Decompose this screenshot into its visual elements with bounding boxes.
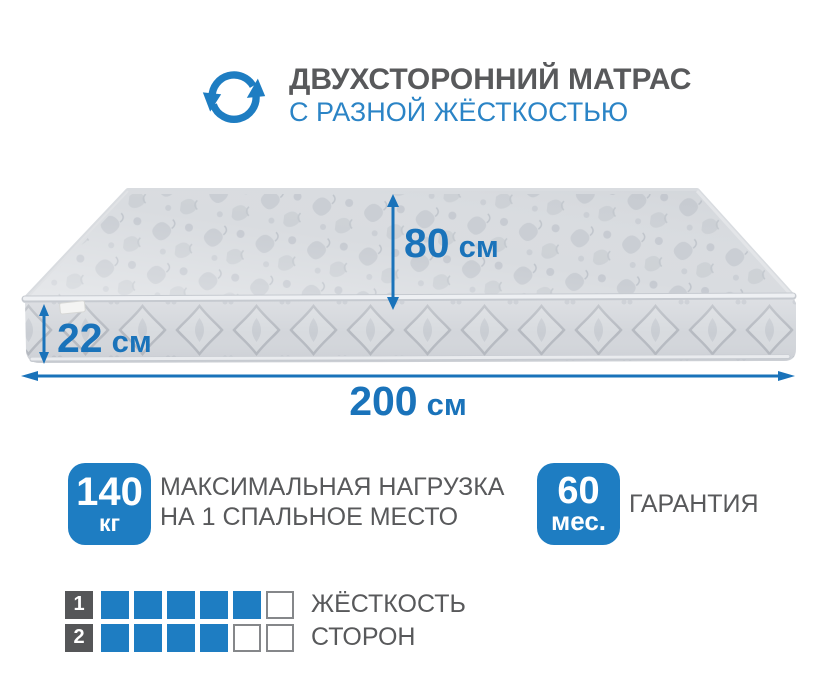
firmness-label: ЖЁСТКОСТЬ	[311, 590, 466, 619]
firmness-cell-filled	[101, 624, 129, 652]
firmness-cell-filled	[200, 624, 228, 652]
mattress-tag	[59, 301, 85, 315]
warranty-label: ГАРАНТИЯ	[629, 463, 759, 545]
dimension-thickness-unit: см	[112, 324, 152, 359]
page-title: ДВУХСТОРОННИЙ МАТРАС	[289, 62, 691, 97]
firmness-label: СТОРОН	[311, 623, 415, 652]
max-load-badge: 140 кг	[68, 463, 151, 545]
warranty-label-line1: ГАРАНТИЯ	[629, 489, 759, 519]
warranty-badge: 60 мес.	[537, 463, 620, 545]
dimension-length-value: 200	[349, 378, 417, 424]
max-load-label-line1: МАКСИМАЛЬНАЯ НАГРУЗКА	[160, 472, 504, 502]
dimension-thickness-value: 22	[57, 315, 103, 361]
page-subtitle: С РАЗНОЙ ЖЁСТКОСТЬЮ	[289, 97, 691, 127]
rotate-arrows-icon	[201, 64, 267, 130]
firmness-cell-empty	[266, 624, 294, 652]
max-load-value: 140	[76, 473, 143, 511]
max-load-unit: кг	[99, 511, 120, 535]
dimension-length-label: 200см	[0, 378, 816, 425]
header-titles: ДВУХСТОРОННИЙ МАТРАС С РАЗНОЙ ЖЁСТКОСТЬЮ	[289, 62, 691, 127]
dimension-thickness-label: 22см	[57, 315, 152, 362]
max-load-label-line2: НА 1 СПАЛЬНОЕ МЕСТО	[160, 502, 504, 532]
firmness-cell-filled	[200, 591, 228, 619]
header: ДВУХСТОРОННИЙ МАТРАС С РАЗНОЙ ЖЁСТКОСТЬЮ	[201, 62, 691, 130]
firmness-cells	[101, 624, 299, 652]
dimension-height-unit: см	[459, 229, 499, 264]
mattress-infographic: ДВУХСТОРОННИЙ МАТРАС С РАЗНОЙ ЖЁСТКОСТЬЮ	[0, 0, 816, 700]
warranty-unit: мес.	[551, 508, 606, 535]
firmness-cell-filled	[167, 624, 195, 652]
firmness-cells	[101, 591, 299, 619]
max-load-label: МАКСИМАЛЬНАЯ НАГРУЗКА НА 1 СПАЛЬНОЕ МЕСТ…	[160, 472, 504, 532]
firmness-cell-empty	[266, 591, 294, 619]
firmness-side-number: 2	[65, 624, 93, 652]
firmness-side-number: 1	[65, 591, 93, 619]
firmness-cell-empty	[233, 624, 261, 652]
firmness-scale: 1 ЖЁСТКОСТЬ 2 СТОРОН	[65, 590, 466, 656]
firmness-cell-filled	[101, 591, 129, 619]
firmness-row-1: 1 ЖЁСТКОСТЬ	[65, 590, 466, 619]
firmness-cell-filled	[233, 591, 261, 619]
firmness-cell-filled	[134, 591, 162, 619]
dimension-length-unit: см	[427, 387, 467, 422]
dimension-height-label: 80см	[404, 220, 499, 267]
firmness-row-2: 2 СТОРОН	[65, 623, 466, 652]
dimension-height-value: 80	[404, 220, 450, 266]
firmness-cell-filled	[167, 591, 195, 619]
firmness-cell-filled	[134, 624, 162, 652]
warranty-value: 60	[557, 474, 599, 508]
